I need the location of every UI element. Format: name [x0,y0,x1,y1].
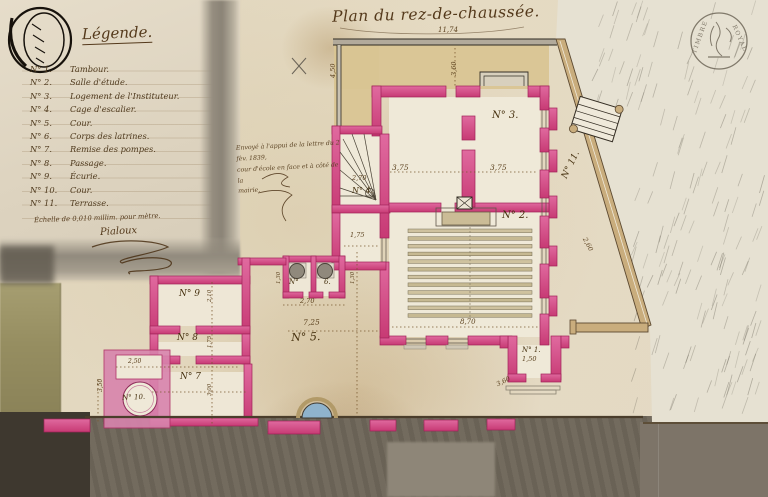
dimension-label: 3,50 [97,379,104,392]
dimension-label: 3,00 [207,384,213,396]
legend-entry-number: N° 11. [30,198,70,208]
room-label: N° 3. [492,110,518,121]
room-label: N° 5. [291,330,321,344]
dimension-label: 3,75 [392,163,409,172]
dimension-label: 11,74 [438,26,458,34]
room-label: N° 7 [180,372,201,382]
legend-entry-label: Salle d'étude. [70,77,128,87]
legend-signature: Pialoux [100,225,138,238]
legend-entry-label: Cour. [70,118,92,128]
dimension-label: 3,75 [490,163,507,172]
room-interiors [158,97,551,418]
legend-entry-number: N° 4. [30,104,70,114]
dimension-label: 4,50 [329,64,337,78]
dimension-label: 1,75 [350,231,364,239]
legend-entry-number: N° 1. [30,64,70,74]
dimension-label: 1,30 [276,272,282,284]
legend-rows: N° 1.Tambour.N° 2.Salle d'étude.N° 3.Log… [30,64,215,211]
room-label: N° [289,278,299,286]
legend-row: N° 8.Passage. [30,158,215,171]
legend-row: N° 11.Terrasse. [30,198,215,211]
legend-entry-number: N° 3. [30,91,70,101]
legend-row: N° 4.Cage d'escalier. [30,104,215,117]
dimension-label: 1,75 [207,336,213,348]
legend-entry-label: Cour. [70,185,92,195]
legend-entry-number: N° 5. [30,118,70,128]
pencil-x-mark [292,58,306,74]
dimension-label: 2,70 [300,297,314,305]
legend-entry-number: N° 10. [30,185,70,195]
legend-entry-label: Logement de l'Instituteur. [70,91,179,101]
legend-title: Légende. [82,23,153,45]
legend-row: N° 9.Écurie. [30,171,215,184]
legend-entry-label: Remise des pompes. [70,144,156,154]
room-label: N° 2. [502,210,528,221]
legend-entry-number: N° 6. [30,131,70,141]
legend-stamp-icon [9,8,71,72]
dimension-label: 8,70 [460,318,476,326]
legend-entry-number: N° 2. [30,77,70,87]
room-label: N° 9 [179,289,200,299]
legend-entry-label: Terrasse. [70,198,109,208]
legend-row: N° 2.Salle d'étude. [30,77,215,90]
legend-row: N° 6.Corps des latrines. [30,131,215,144]
well [298,399,336,418]
dimension-label: 1,30 [350,272,356,284]
dimension-label: 1,50 [522,355,536,363]
legend-row: N° 3.Logement de l'Instituteur. [30,91,215,104]
legend-entry-number: N° 7. [30,144,70,154]
legend-row: N° 5.Cour. [30,118,215,131]
room-label: N° 1. [522,346,541,354]
scanned-floor-plan-page: { "title": "Plan du rez-de-chaussée.", "… [0,0,768,497]
legend-entry-number: N° 9. [30,171,70,181]
dimension-label: 2,70 [352,174,366,182]
dimension-label: 2,50 [128,358,141,365]
legend-entry-label: Écurie. [70,171,100,181]
room-label: N° 8 [177,333,198,343]
legend-entry-label: Corps des latrines. [70,131,149,141]
legend-row: N° 7.Remise des pompes. [30,144,215,157]
dimension-label: 3,60 [450,62,458,76]
north-wall-recess [480,72,528,86]
dimension-label: 2,10 [207,290,213,302]
legend-row: N° 1.Tambour. [30,64,215,77]
legend-entry-label: Passage. [70,158,106,168]
legend-row: N° 10.Cour. [30,185,215,198]
room-label: 6. [324,278,331,286]
annotation-note: Envoyé à l'appui de la lettre du 2 fèv. … [236,138,345,198]
legend-entry-number: N° 8. [30,158,70,168]
room-label: N° 4. [352,186,373,195]
legend-entry-label: Cage d'escalier. [70,104,136,114]
dimension-label: 7,25 [303,317,320,327]
legend-entry-label: Tambour. [70,64,109,74]
room-label: N° 10. [122,393,145,402]
